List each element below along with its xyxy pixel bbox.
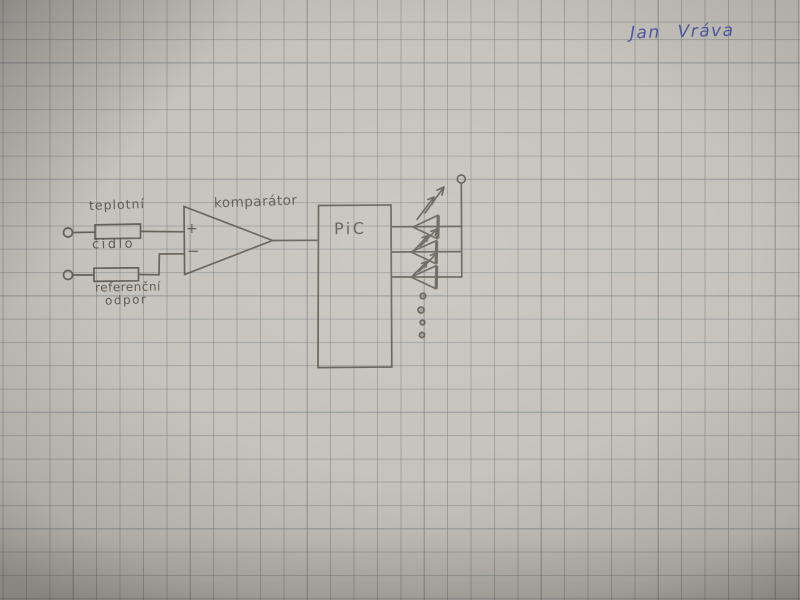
signature: Jan Vráva (630, 23, 735, 43)
input-terminal-top-icon (64, 228, 73, 237)
label-sensor-line1: teplotní (89, 198, 145, 212)
photo-of-graph-paper: teplotní čidlo referenční odpor komparát… (0, 0, 800, 600)
label-mcu: PiC (334, 221, 367, 238)
output-terminal-icon (457, 175, 465, 183)
wire (461, 184, 462, 278)
label-reference-line2: odpor (105, 293, 148, 306)
comparator-triangle-icon (184, 207, 273, 275)
ellipsis-dots-icon (418, 293, 426, 337)
label-reference-line1: referenční (95, 280, 161, 293)
label-comparator: komparátor (214, 195, 298, 211)
led-icon (413, 187, 444, 239)
comparator-minus-input-label: − (187, 244, 200, 259)
label-sensor-line2: čidlo (92, 238, 135, 252)
input-terminal-bottom-icon (64, 271, 73, 280)
wire (139, 254, 185, 275)
comparator-plus-input-label: + (186, 222, 198, 236)
led-icon (411, 229, 437, 264)
